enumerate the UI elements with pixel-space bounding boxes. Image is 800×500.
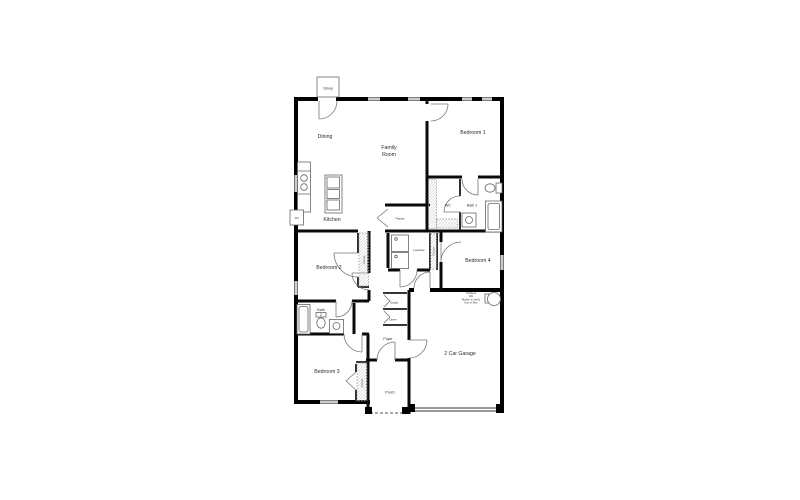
label-wc: WC xyxy=(445,204,451,208)
label-bedroom3: Bedroom 3 xyxy=(314,369,339,375)
label-stoop: Stoop xyxy=(323,87,332,91)
label-bath2-line1: Bath xyxy=(317,308,324,312)
bath1-sink xyxy=(462,213,476,227)
water-heater xyxy=(488,293,501,306)
label-closet-bedroom3: Closet xyxy=(360,379,364,388)
label-ref: Ref xyxy=(295,216,299,220)
label-linen: Linen xyxy=(389,318,397,322)
label-family-room-line2: Room xyxy=(382,152,396,158)
label-dining: Dining xyxy=(318,134,333,140)
label-bedroom1: Bedroom 1 xyxy=(460,130,485,136)
label-garage: 2 Car Garage xyxy=(444,351,476,357)
label-wh-note-line4: Gas or Elec xyxy=(464,301,478,305)
label-family-room-line1: Family xyxy=(381,145,397,151)
label-coats: Coats xyxy=(390,301,399,305)
label-porch: Porch xyxy=(385,391,394,395)
bath1-toilet xyxy=(496,183,502,193)
label-bath2-line2: 2 xyxy=(320,313,322,317)
label-bath1: Bath 1 xyxy=(467,204,477,208)
dryer xyxy=(392,253,409,269)
bath2-sink xyxy=(330,320,344,334)
label-kitchen: Kitchen xyxy=(323,217,340,223)
floor-plan: Stoop Dining Family Room Bedroom 1 Kitch… xyxy=(0,0,800,500)
garage-door xyxy=(414,408,500,411)
washer xyxy=(392,235,409,252)
label-bedroom4: Bedroom 4 xyxy=(465,258,490,264)
label-closet-bedroom2: Closet xyxy=(362,256,366,265)
kitchen-counter xyxy=(298,162,311,212)
label-closet-bedroom4: Closet xyxy=(432,247,436,256)
floor-plan-svg: Stoop Dining Family Room Bedroom 1 Kitch… xyxy=(0,0,800,500)
label-laundry: Laundry xyxy=(413,248,425,252)
label-foyer: Foyer xyxy=(383,337,393,341)
label-pantry: Pantry xyxy=(396,217,405,221)
openings xyxy=(365,404,503,414)
label-bedroom2: Bedroom 2 xyxy=(316,265,341,271)
